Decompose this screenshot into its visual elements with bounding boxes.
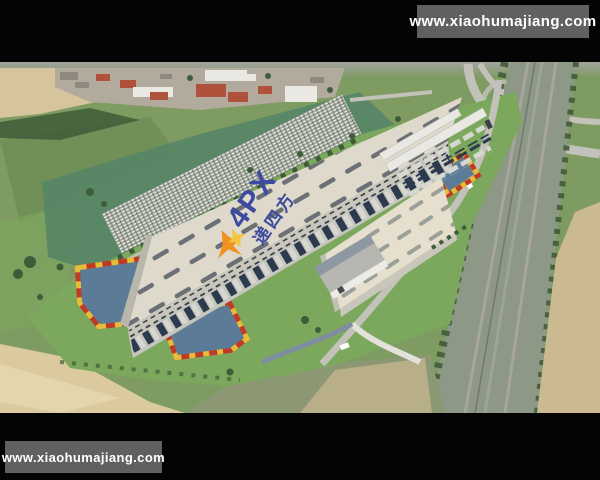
watermark-bar-top: www.xiaohumajiang.com (417, 5, 589, 38)
watermark-text-bottom: www.xiaohumajiang.com (2, 450, 165, 465)
watermark-bar-bottom: www.xiaohumajiang.com (5, 441, 162, 473)
screenshot-frame: 4PX 递四方 (0, 0, 600, 480)
aerial-rendering: 4PX 递四方 (0, 62, 600, 413)
watermark-text-top: www.xiaohumajiang.com (409, 13, 596, 30)
